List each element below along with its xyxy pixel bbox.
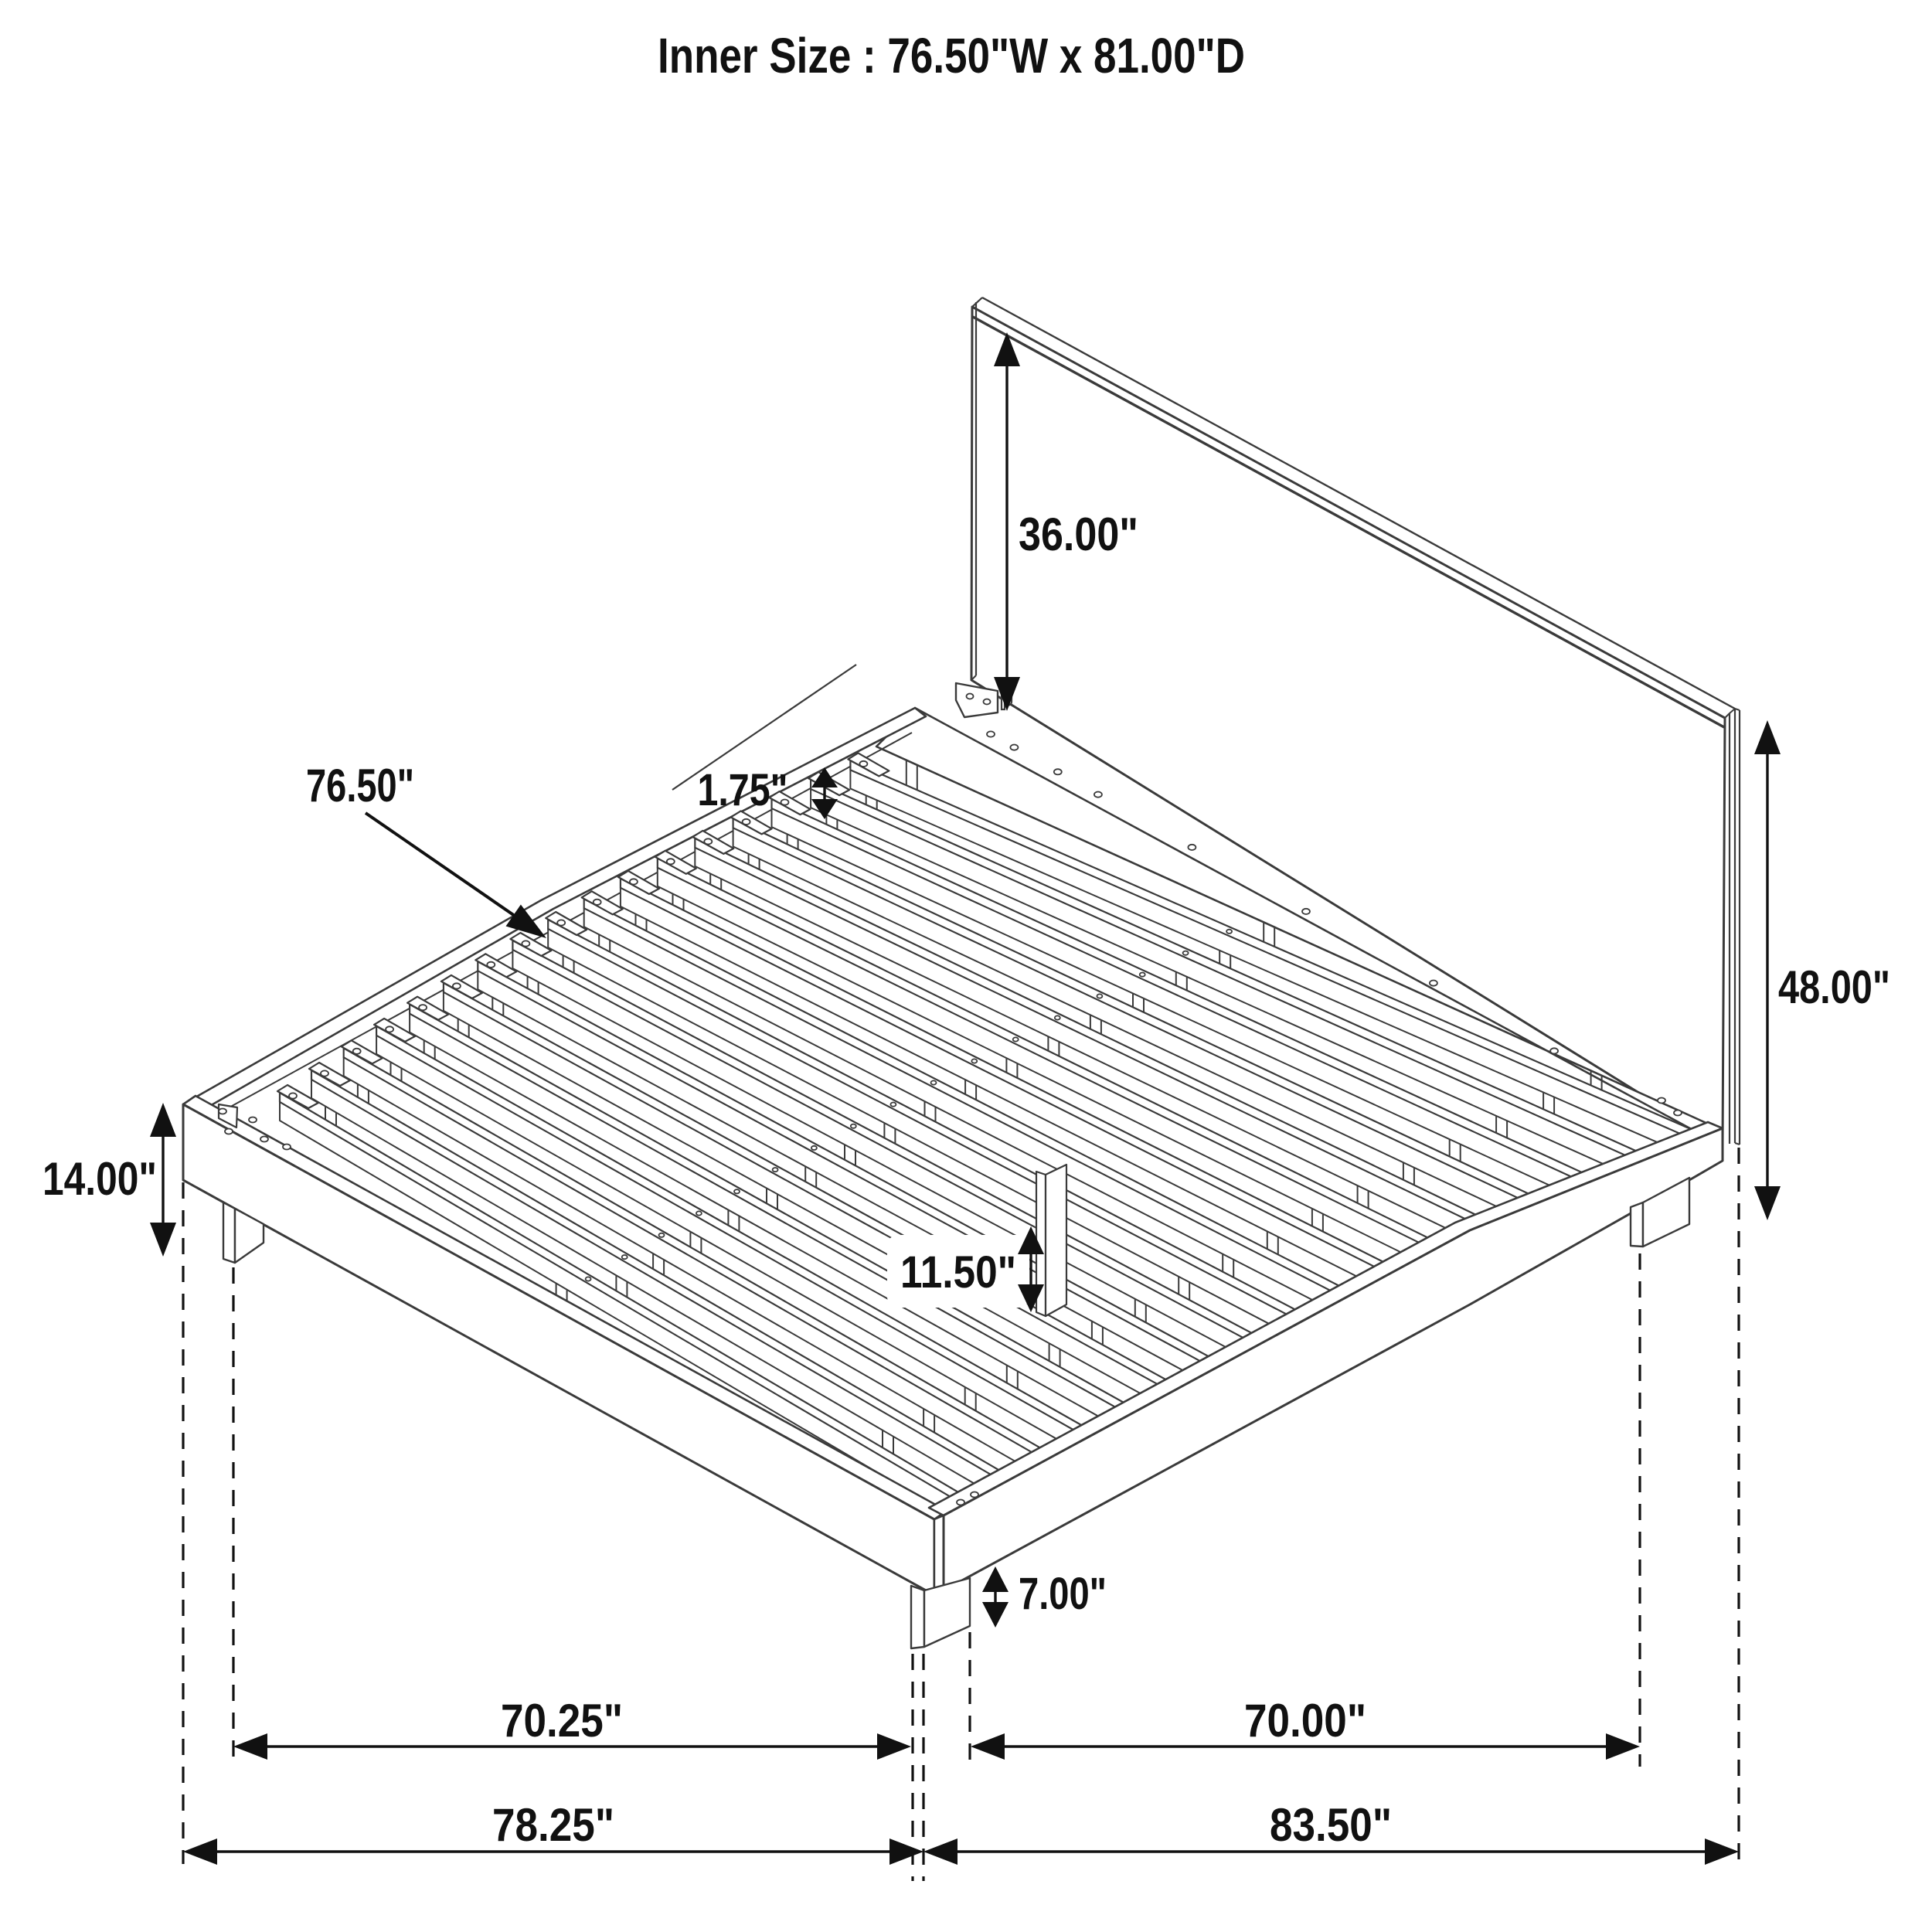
svg-text:70.00": 70.00"	[1244, 1695, 1366, 1747]
svg-text:1.75": 1.75"	[698, 765, 788, 815]
svg-text:14.00": 14.00"	[43, 1153, 157, 1205]
svg-text:70.25": 70.25"	[501, 1695, 623, 1747]
svg-text:7.00": 7.00"	[1019, 1569, 1107, 1619]
svg-text:76.50": 76.50"	[306, 760, 414, 811]
svg-text:Inner Size : 76.50"W x 81.00"D: Inner Size : 76.50"W x 81.00"D	[658, 28, 1245, 83]
svg-text:36.00": 36.00"	[1019, 509, 1138, 560]
svg-text:48.00": 48.00"	[1778, 961, 1890, 1013]
svg-text:83.50": 83.50"	[1270, 1799, 1392, 1851]
svg-text:78.25": 78.25"	[492, 1799, 614, 1851]
svg-text:11.50": 11.50"	[900, 1247, 1016, 1298]
